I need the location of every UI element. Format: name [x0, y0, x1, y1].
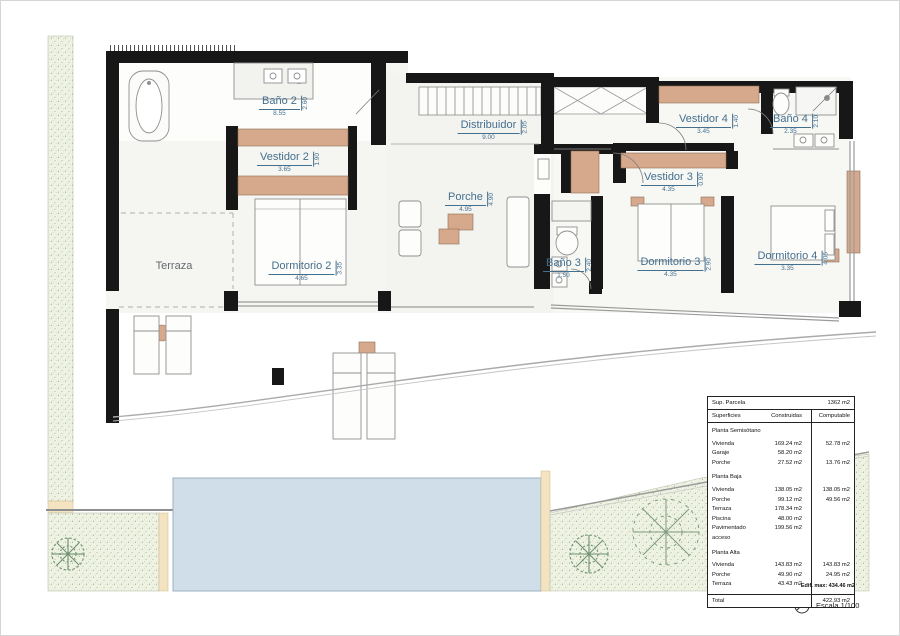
room-label-vestidor-3: Vestidor 3 4.35 0.90: [641, 172, 705, 194]
table-row: Vivienda 143.83 m2 143.83 m2: [712, 561, 850, 571]
room-name: Baño 2: [259, 96, 300, 110]
surfaces-table: Sup. Parcela 1362 m2 Superficies Constru…: [707, 396, 855, 608]
table-row: Porche 99.12 m2 49.56 m2: [712, 496, 850, 506]
room-name: Distribuidor: [458, 120, 520, 134]
room-height-dim: 2.05: [520, 120, 528, 135]
table-row: Piscina 48.00 m2: [712, 515, 850, 525]
room-label-vestidor-2: Vestidor 2 3.65 1.90: [257, 152, 321, 174]
room-label-dormitorio-4: Dormitorio 4 3.35 4.05: [754, 251, 829, 273]
room-name: Vestidor 3: [641, 172, 696, 186]
room-height-dim: 0.90: [697, 172, 705, 187]
table-row: Terraza 178.34 m2: [712, 505, 850, 515]
room-height-dim: 2.40: [585, 258, 593, 273]
void-cross: [554, 87, 648, 114]
table-row: Garaje 58.20 m2: [712, 449, 850, 459]
room-name: Vestidor 2: [257, 152, 312, 166]
table-row: Pavimentado acceso 199.56 m2: [712, 524, 850, 543]
pool: [173, 478, 541, 591]
parcel-row: Sup. Parcela 1362 m2: [708, 397, 854, 410]
room-height-dim: 1.90: [313, 152, 321, 167]
room-label-dormitorio-3: Dormitorio 3 4.35 2.90: [637, 257, 712, 279]
room-width-dim: 4.65: [295, 275, 308, 283]
room-height-dim: 2.90: [704, 257, 712, 272]
stairs: [419, 87, 541, 115]
room-label-terraza: Terraza: [153, 261, 196, 274]
room-name: Dormitorio 2: [268, 261, 334, 275]
parcel-value: 1362 m2: [827, 400, 850, 406]
parcel-label: Sup. Parcela: [712, 400, 745, 406]
room-height-dim: 1.40: [732, 114, 740, 129]
table-column-divider: [811, 409, 812, 607]
table-row: Porche 49.90 m2 24.95 m2: [712, 571, 850, 581]
table-body: Planta Semisótano Vivienda 169.24 m2 52.…: [708, 423, 854, 594]
section-title: Planta Baja: [712, 473, 850, 483]
room-height-dim: 4.90: [487, 192, 495, 207]
col-header: Superficies: [712, 413, 760, 419]
room-width-dim: 2.35: [784, 128, 797, 136]
col-header: Construidas: [760, 413, 810, 419]
room-width-dim: 8.55: [273, 110, 286, 118]
table-header: Superficies Construidas Computable: [708, 410, 854, 423]
plan-sheet: Baño 2 8.55 2.60 Vestidor 2 3.65 1.90 Di…: [0, 0, 900, 636]
max-buildable-note: Edif. max: 434.46 m2: [707, 583, 855, 589]
room-name: Baño 4: [770, 114, 811, 128]
table-row: Porche 27.52 m2 13.76 m2: [712, 459, 850, 469]
room-label-vestidor-4: Vestidor 4 3.45 1.40: [676, 114, 740, 136]
room-height-dim: 2.60: [301, 96, 309, 111]
room-height-dim: 4.05: [821, 251, 829, 266]
room-label-porche: Porche 4.95 4.90: [445, 192, 495, 214]
room-label-bano-4: Baño 4 2.35 2.10: [770, 114, 820, 136]
room-name: Vestidor 4: [676, 114, 731, 128]
room-label-bano-3: Baño 3 1.50 2.40: [543, 258, 593, 280]
section-title: Planta Semisótano: [712, 427, 850, 437]
room-width-dim: 3.35: [781, 265, 794, 273]
room-width-dim: 3.45: [697, 128, 710, 136]
scale-label: Escala 1/100: [816, 601, 859, 610]
room-height-dim: 2.10: [812, 114, 820, 129]
room-width-dim: 9.00: [482, 134, 495, 142]
room-width-dim: 4.35: [664, 271, 677, 279]
room-name: Baño 3: [543, 258, 584, 272]
room-name: Dormitorio 4: [754, 251, 820, 265]
total-label: Total: [712, 598, 790, 604]
section-title: Planta Alta: [712, 549, 850, 559]
room-name: Terraza: [153, 261, 196, 274]
room-label-distribuidor: Distribuidor 9.00 2.05: [458, 120, 529, 142]
wall-hatch: [109, 45, 235, 51]
room-width-dim: 1.50: [557, 272, 570, 280]
room-name: Porche: [445, 192, 486, 206]
room-width-dim: 4.35: [662, 186, 675, 194]
table-row: Vivienda 169.24 m2 52.78 m2: [712, 440, 850, 450]
room-label-dormitorio-2: Dormitorio 2 4.65 3.35: [268, 261, 343, 283]
room-height-dim: 3.35: [335, 261, 343, 276]
col-header: Computable: [810, 413, 850, 419]
table-row: Vivienda 138.05 m2 138.05 m2: [712, 486, 850, 496]
room-label-bano-2: Baño 2 8.55 2.60: [259, 96, 309, 118]
room-width-dim: 4.95: [459, 206, 472, 214]
room-width-dim: 3.65: [278, 166, 291, 174]
room-name: Dormitorio 3: [637, 257, 703, 271]
